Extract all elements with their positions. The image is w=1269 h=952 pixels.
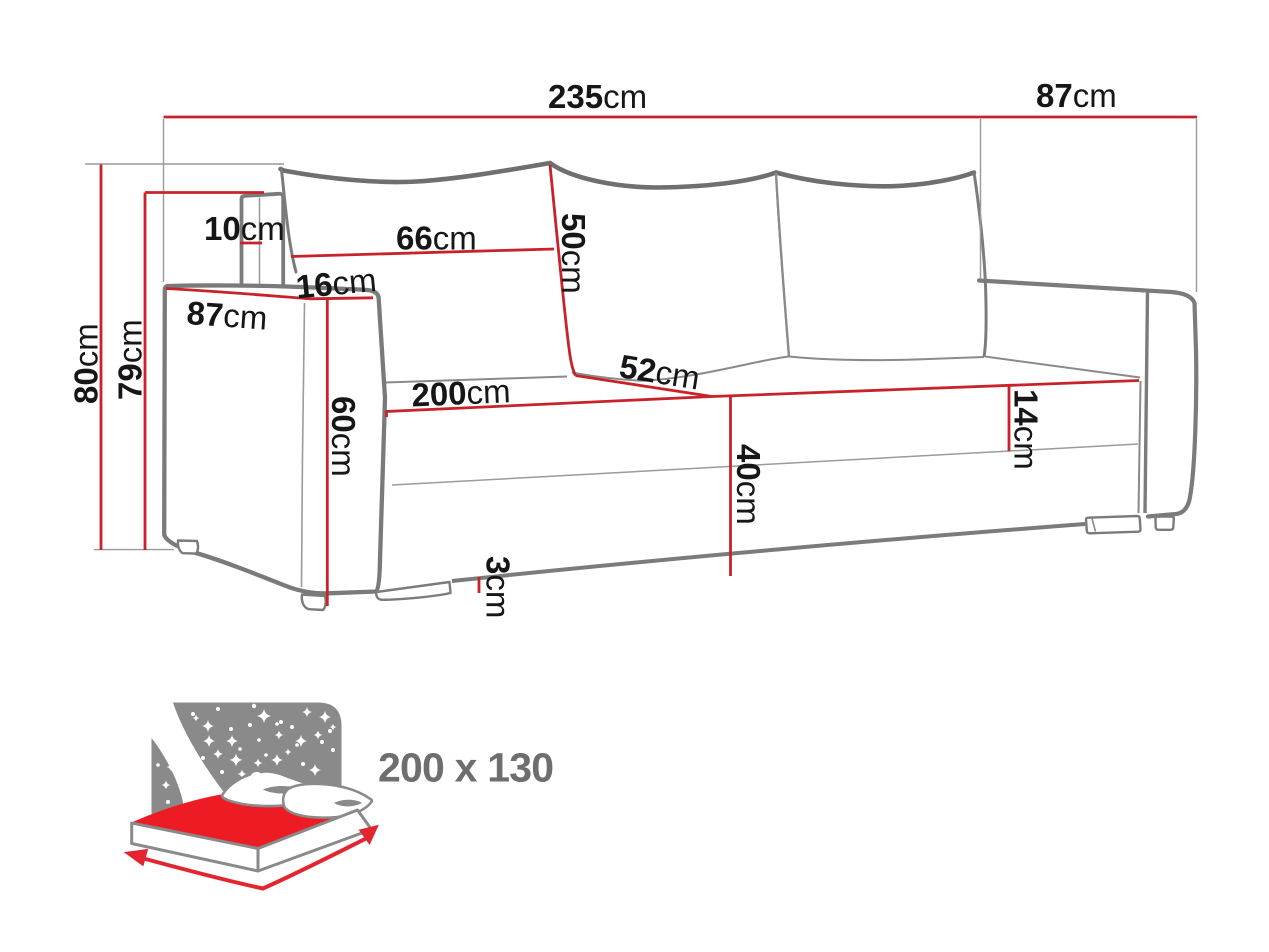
svg-text:16cm: 16cm xyxy=(294,261,378,306)
svg-text:87cm: 87cm xyxy=(1036,77,1117,114)
svg-text:80cm: 80cm xyxy=(68,323,105,404)
svg-text:66cm: 66cm xyxy=(396,220,477,257)
svg-text:10cm: 10cm xyxy=(204,210,285,247)
svg-text:87cm: 87cm xyxy=(186,294,269,337)
svg-text:235cm: 235cm xyxy=(548,78,647,115)
svg-text:40cm: 40cm xyxy=(730,444,767,525)
svg-text:60cm: 60cm xyxy=(325,396,362,477)
svg-text:14cm: 14cm xyxy=(1008,389,1045,470)
svg-text:79cm: 79cm xyxy=(112,319,149,400)
svg-text:3cm: 3cm xyxy=(480,556,517,618)
svg-text:50cm: 50cm xyxy=(555,213,592,294)
svg-text:200cm: 200cm xyxy=(411,372,512,413)
svg-text:200 x 130: 200 x 130 xyxy=(378,745,553,791)
